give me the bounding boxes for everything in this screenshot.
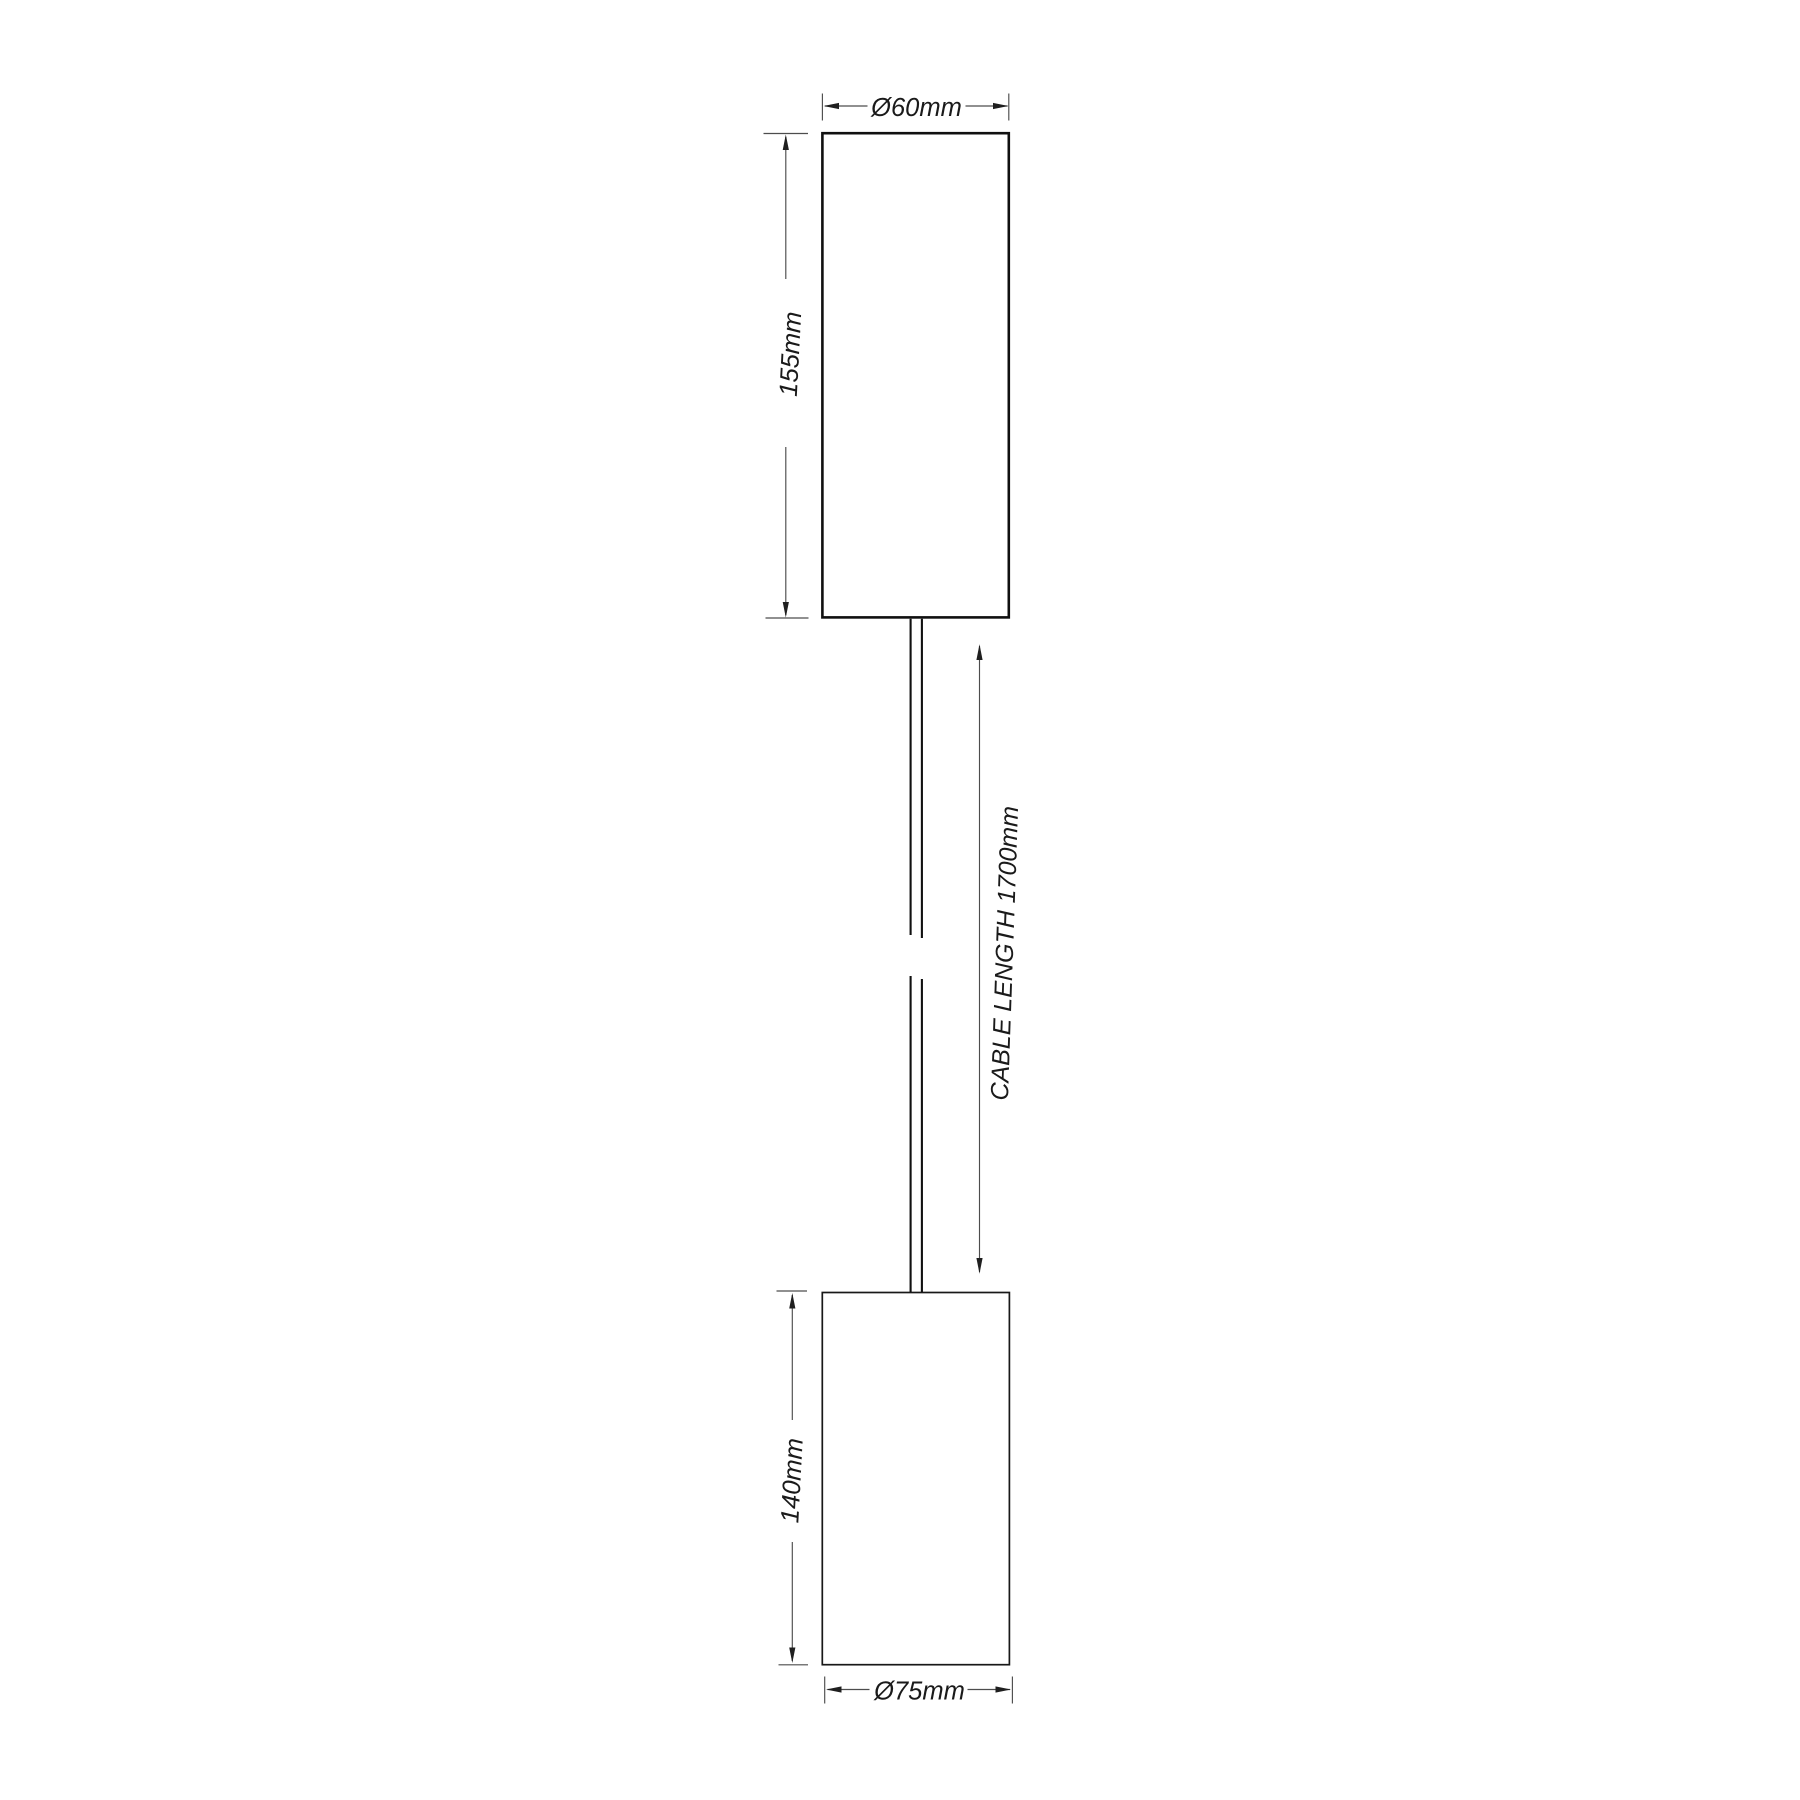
svg-text:155mm: 155mm bbox=[775, 311, 807, 397]
svg-text:Ø75mm: Ø75mm bbox=[873, 1678, 965, 1706]
svg-text:140mm: 140mm bbox=[776, 1437, 808, 1523]
svg-text:Ø60mm: Ø60mm bbox=[870, 94, 962, 122]
